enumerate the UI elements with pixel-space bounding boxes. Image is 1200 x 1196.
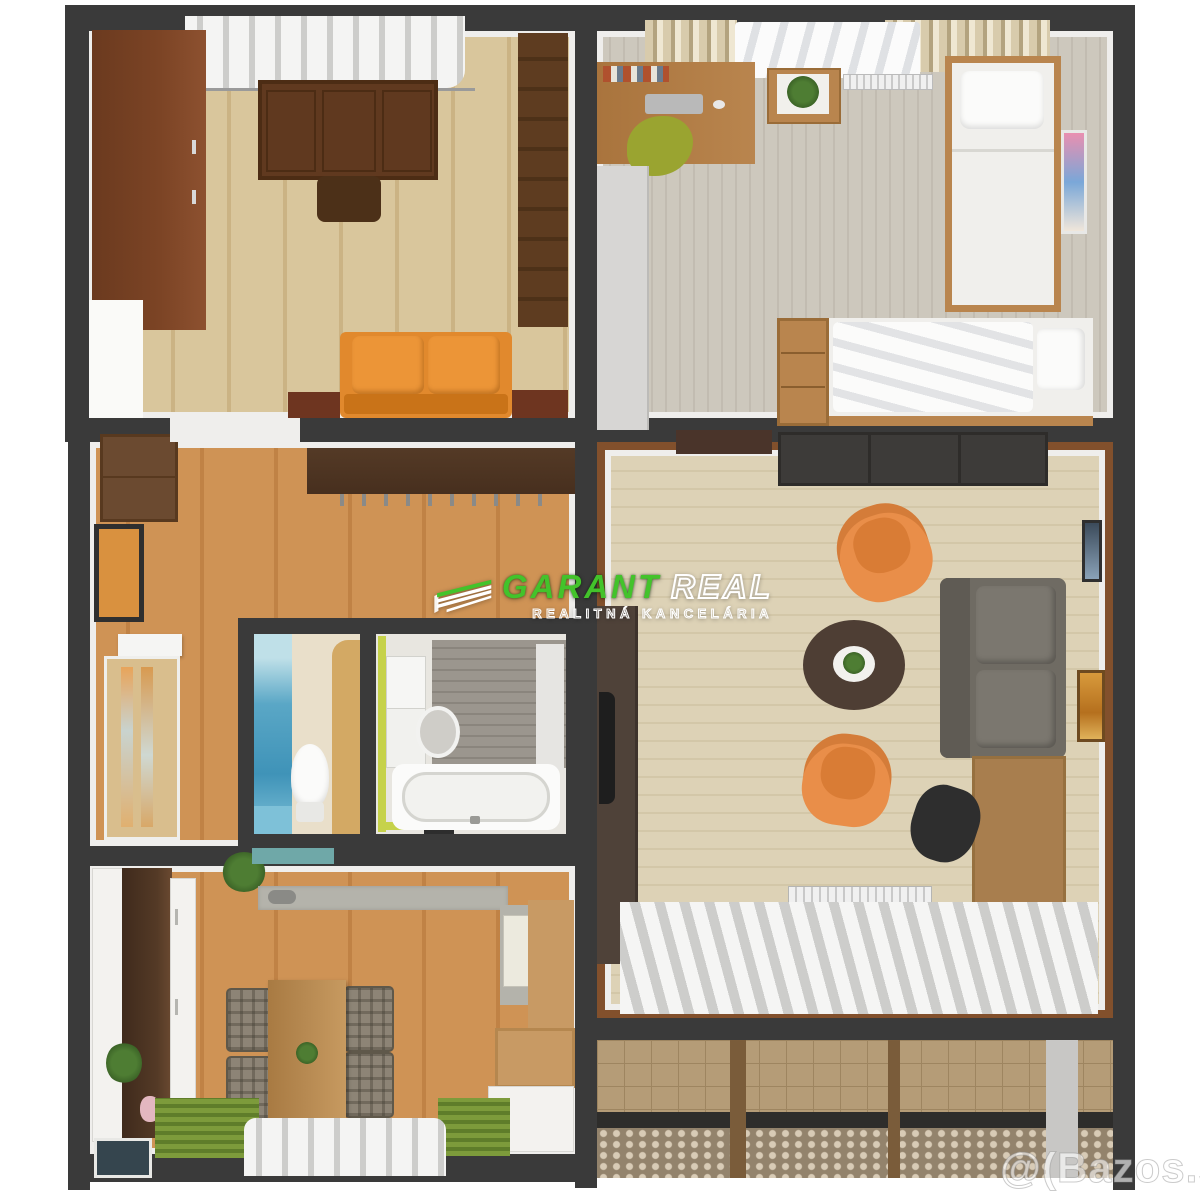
garant-brand-line: GARANTREAL <box>502 570 773 603</box>
bed-pillow <box>960 71 1044 129</box>
kids-radiator <box>843 74 933 90</box>
living-shelf-top-left <box>676 430 772 454</box>
kitchen-sink-dark <box>94 1138 152 1178</box>
wc-ocean-poster <box>254 634 292 834</box>
wall-living-balcony <box>575 1018 1135 1040</box>
garant-subtitle: REALITNÁ KANCELÁRIA <box>502 606 773 621</box>
hallway-wardrobe-top <box>307 448 575 494</box>
door-opening-bedroom-hallway <box>170 418 300 442</box>
desk-books <box>603 66 669 82</box>
armchair-seat <box>847 511 917 580</box>
bedroom-sofa <box>340 332 512 418</box>
desk-monitor <box>645 94 703 114</box>
kitchen-appliance-front <box>503 915 529 987</box>
wc-room <box>254 634 360 834</box>
kitchen-faucet <box>268 890 296 904</box>
kids-bed-right <box>945 56 1061 312</box>
kitchen-chair <box>226 988 272 1052</box>
tv-screen <box>599 692 615 804</box>
kitchen-chair <box>344 986 394 1052</box>
bathroom-washer <box>386 656 426 710</box>
kitchen-countertop-top <box>258 886 508 910</box>
desk-mouse <box>713 100 725 109</box>
bedroom-desk <box>258 80 438 180</box>
living-tv-wall-unit <box>778 432 1048 486</box>
wc-floor-blue <box>254 806 292 834</box>
wc-toilet <box>291 744 329 808</box>
desk-panel <box>382 90 432 172</box>
dresser-drawer-line <box>781 386 825 388</box>
bedroom-desk-chair <box>317 176 381 222</box>
kids-wall-picture <box>1061 130 1087 234</box>
kids-wardrobe <box>597 166 649 430</box>
kitchen-wood-counter-right <box>495 1028 575 1088</box>
hallway-cabinet <box>100 434 178 522</box>
balcony-divider-right <box>888 1040 900 1178</box>
kitchen-fridge-column <box>170 878 196 1110</box>
sofa-back <box>940 578 970 758</box>
floor-plan-render: GARANTREAL REALITNÁ KANCELÁRIA @(Bazos.s… <box>0 0 1200 1196</box>
desk-panel <box>322 90 376 172</box>
bedroom-wardrobe <box>92 30 206 330</box>
garant-brand-first: GARANT <box>502 568 661 605</box>
wall-left-upper <box>65 5 89 435</box>
dresser-drawer-line <box>781 352 825 354</box>
nightstand-plant <box>787 76 819 108</box>
bathroom-right-panel <box>536 644 564 770</box>
desk-panel <box>266 90 316 172</box>
sofa-cushion <box>976 586 1056 664</box>
hallway-hanger-rail <box>322 494 552 506</box>
hallway-entry-door <box>104 656 180 840</box>
table-plant <box>296 1042 318 1064</box>
kitchen-chair <box>344 1052 394 1118</box>
bedroom-window-curtains <box>185 16 465 88</box>
hallway-service-window <box>94 524 144 622</box>
kitchen-window-curtains <box>244 1118 446 1176</box>
garant-brand-second: REAL <box>671 568 773 605</box>
cabinet-shelf-line <box>103 476 175 478</box>
wall-left-middle <box>68 430 90 855</box>
kitchen-counter-right <box>500 905 530 1005</box>
garant-watermark-text: GARANTREAL REALITNÁ KANCELÁRIA <box>502 570 773 621</box>
wardrobe-handle <box>192 190 196 204</box>
kids-nightstand <box>767 68 841 124</box>
armchair-seat <box>818 744 879 803</box>
sofa-cushion <box>428 336 500 394</box>
living-sofa-gray <box>940 578 1066 758</box>
kitchen-doormat <box>252 848 334 864</box>
living-coffee-table <box>803 620 905 710</box>
wall-right <box>1113 5 1135 1190</box>
bathroom-trim-left <box>378 636 386 832</box>
living-wall-shelf <box>1082 520 1102 582</box>
bathtub-faucet <box>470 816 480 824</box>
kids-dresser <box>777 318 829 426</box>
fridge-handle <box>175 999 178 1015</box>
living-window-curtains <box>620 902 1098 1014</box>
coffee-table-plant <box>843 652 865 674</box>
bedroom-entry-nook <box>89 300 143 418</box>
unit-divider <box>868 432 871 486</box>
bathtub-basin <box>402 772 550 822</box>
unit-divider <box>958 432 961 486</box>
bathroom-floor-mat <box>424 830 454 834</box>
kitchen-dining-table <box>268 980 346 1126</box>
bed-pillow <box>1037 328 1085 390</box>
fridge-handle <box>175 909 178 925</box>
bedroom-bookshelf <box>518 33 568 327</box>
balcony-shadow-strip <box>597 1112 1113 1128</box>
garant-real-watermark: GARANTREAL REALITNÁ KANCELÁRIA <box>433 570 773 622</box>
bed-duvet-fold <box>952 149 1054 152</box>
wc-door <box>332 640 360 834</box>
garant-logo-roof-icon <box>433 570 494 622</box>
living-desk <box>972 756 1066 906</box>
hallway-shelf <box>118 634 182 656</box>
bathroom-room <box>376 634 566 834</box>
kids-bed-bottom <box>829 318 1093 426</box>
door-glass-slat <box>141 667 153 827</box>
sofa-cushion <box>976 670 1056 748</box>
bathroom-bathtub <box>392 764 560 830</box>
bed-duvet <box>833 322 1033 412</box>
balcony-floor <box>597 1040 1113 1114</box>
living-wall-picture <box>1077 670 1105 742</box>
wardrobe-handle <box>192 140 196 154</box>
sofa-seat <box>344 394 508 414</box>
bedroom-side-table-right <box>512 390 568 418</box>
kitchen-wood-panel-right <box>528 900 574 1030</box>
wall-left-lower <box>68 852 90 1190</box>
bathroom-sink <box>416 706 460 758</box>
bazos-watermark: @(Bazos.sk <box>1000 1144 1200 1192</box>
door-glass-slat <box>121 667 133 827</box>
sofa-cushion <box>352 336 424 394</box>
kitchen-rug-right <box>438 1098 510 1156</box>
wc-toilet-tank <box>296 802 324 822</box>
bedroom-side-table-left <box>288 392 340 418</box>
balcony-divider-left <box>730 1040 746 1178</box>
kitchen-plant-left <box>106 1042 142 1084</box>
